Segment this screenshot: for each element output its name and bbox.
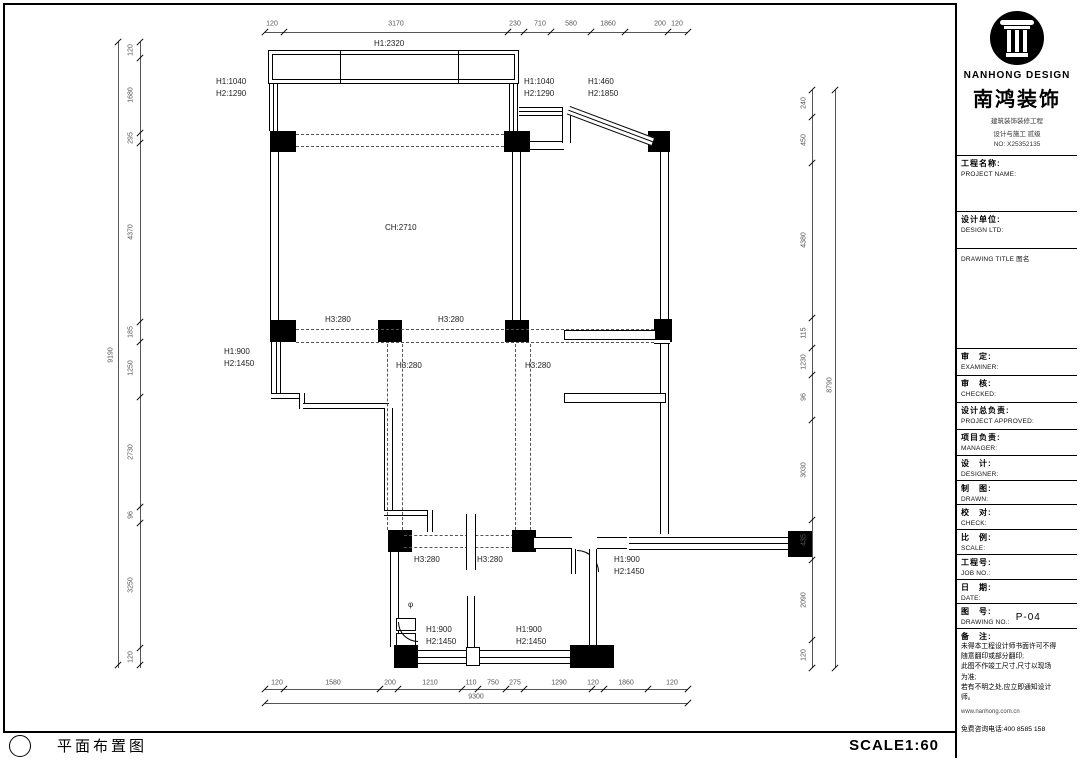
plan-annotation: H3:280 bbox=[325, 316, 351, 324]
wall bbox=[589, 549, 597, 647]
notes-label: 备 注: bbox=[961, 631, 1073, 642]
field-design-unit: 设计单位: DESIGN LTD: bbox=[957, 212, 1077, 249]
beam-dashed bbox=[404, 535, 514, 548]
note-line: 未得本工程设计师书面许可不得 bbox=[961, 642, 1073, 652]
dimension-label: 185 bbox=[128, 326, 135, 338]
dimension-label: 2730 bbox=[128, 444, 135, 460]
dimension-label: 2090 bbox=[801, 592, 808, 608]
column bbox=[570, 645, 614, 668]
field-label-en: DRAWING TITLE 图名 bbox=[961, 253, 1073, 263]
field-check: 校 对: CHECK: bbox=[957, 505, 1077, 530]
dimension-label: 580 bbox=[565, 21, 577, 28]
dimension-label: 120 bbox=[271, 680, 283, 687]
field-job-no: 工程号: JOB NO.: bbox=[957, 555, 1077, 580]
field-label-en: PROJECT NAME: bbox=[961, 171, 1073, 178]
field-label-en: CHECKED: bbox=[961, 391, 1073, 398]
field-label-cn: 工程名称: bbox=[961, 158, 1073, 169]
brand-section: NANHONG DESIGN 南鸿装饰 建筑装饰装修工程 设计与施工 贰级 NO… bbox=[957, 3, 1077, 156]
wall bbox=[427, 510, 433, 532]
field-project-name: 工程名称: PROJECT NAME: bbox=[957, 156, 1077, 212]
company-logo-icon bbox=[990, 11, 1044, 65]
brand-cert-line: 设计与施工 贰级 bbox=[961, 128, 1073, 138]
plan-annotation: H1:900 bbox=[516, 626, 542, 634]
dim-tick bbox=[684, 685, 691, 692]
column bbox=[504, 131, 530, 152]
plan-annotation: H3:280 bbox=[525, 362, 551, 370]
field-label-en: EXAMINER: bbox=[961, 364, 1073, 371]
field-label-en: PROJECT APPROVED: bbox=[961, 418, 1073, 425]
door-leaf bbox=[571, 549, 576, 574]
column bbox=[270, 320, 296, 342]
dimension-label: 450 bbox=[801, 134, 808, 146]
brand-cert-line: 建筑装饰装修工程 bbox=[961, 115, 1073, 125]
note-line: 此图不作竣工尺寸,尺寸以现场 bbox=[961, 662, 1073, 672]
field-designer: 设 计: DESIGNER: bbox=[957, 456, 1077, 481]
dimension-label: 9300 bbox=[468, 694, 484, 701]
field-label-cn: 制 图: bbox=[961, 483, 1073, 494]
beam-dashed bbox=[387, 344, 403, 530]
column bbox=[512, 530, 536, 552]
dim-tick bbox=[831, 664, 838, 671]
drawing-title: 平面布置图 bbox=[57, 735, 147, 756]
dimension-label: 240 bbox=[801, 97, 808, 109]
floor-plan: H1:2320H1:1040H2:1290H1:1040H2:1290H1:46… bbox=[0, 0, 1080, 761]
field-label-en: DATE: bbox=[961, 595, 1073, 602]
dim-tick bbox=[684, 699, 691, 706]
dimension-label: 710 bbox=[534, 21, 546, 28]
dimension-label: 120 bbox=[266, 21, 278, 28]
wall bbox=[597, 537, 627, 549]
wall-left bbox=[270, 152, 279, 320]
dimension-label: 1290 bbox=[551, 680, 567, 687]
window-left-middle bbox=[271, 342, 281, 394]
field-label-cn: 项目负责: bbox=[961, 432, 1073, 443]
wall bbox=[530, 141, 564, 150]
dimension-label: 200 bbox=[384, 680, 396, 687]
field-label-en: MANAGER: bbox=[961, 445, 1073, 452]
field-label-en: JOB NO.: bbox=[961, 570, 1073, 577]
column bbox=[394, 645, 418, 668]
wall-right-lower bbox=[660, 344, 669, 534]
field-label-cn: 设计单位: bbox=[961, 214, 1073, 225]
plan-annotation: H2:1850 bbox=[588, 90, 618, 98]
plan-annotation: H3:280 bbox=[438, 316, 464, 324]
window-bottom-a bbox=[418, 650, 466, 664]
dimension-label: 96 bbox=[128, 511, 135, 519]
dim-line-right-inner bbox=[812, 90, 813, 668]
plan-annotation: H1:1040 bbox=[216, 78, 246, 86]
dimension-label: 435 bbox=[801, 534, 808, 546]
bottom-bar: 平面布置图 SCALE1:60 bbox=[3, 731, 955, 758]
dimension-label: 110 bbox=[465, 680, 476, 687]
window-mid-upper bbox=[509, 84, 518, 131]
plan-annotation: H3:280 bbox=[396, 362, 422, 370]
plan-annotation: H3:280 bbox=[414, 556, 440, 564]
field-project-approved: 设计总负责: PROJECT APPROVED: bbox=[957, 403, 1077, 430]
drawing-sheet: H1:2320H1:1040H2:1290H1:1040H2:1290H1:46… bbox=[0, 0, 1080, 761]
brand-name-en: NANHONG DESIGN bbox=[961, 70, 1073, 81]
plan-annotation: H2:1290 bbox=[216, 90, 246, 98]
field-label-en: DESIGNER: bbox=[961, 471, 1073, 478]
plan-annotation: H1:900 bbox=[224, 348, 250, 356]
dimension-label: 120 bbox=[128, 651, 135, 663]
balcony-window-mullion bbox=[340, 50, 341, 84]
dimension-label: 275 bbox=[509, 680, 521, 687]
drawing-marker-icon bbox=[9, 735, 31, 757]
field-checked: 审 核: CHECKED: bbox=[957, 376, 1077, 403]
window-left-upper bbox=[269, 84, 278, 131]
field-label-cn: 设计总负责: bbox=[961, 405, 1073, 416]
field-label-cn: 设 计: bbox=[961, 458, 1073, 469]
field-label-en: SCALE: bbox=[961, 545, 1073, 552]
beam-dashed bbox=[296, 134, 504, 147]
plan-annotation: H2:1450 bbox=[426, 638, 456, 646]
dimension-label: 115 bbox=[801, 327, 808, 338]
dimension-label: 120 bbox=[666, 680, 678, 687]
plan-annotation: H1:900 bbox=[426, 626, 452, 634]
field-scale: 比 例: SCALE: bbox=[957, 530, 1077, 555]
field-label-cn: 比 例: bbox=[961, 532, 1073, 543]
plan-annotation: H1:2320 bbox=[374, 40, 404, 48]
plan-annotation: H2:1450 bbox=[614, 568, 644, 576]
drawing-scale: SCALE1:60 bbox=[849, 737, 939, 754]
dimension-label: 1230 bbox=[801, 354, 808, 370]
balcony-window-mullion bbox=[458, 50, 459, 84]
bay-window-horizontal bbox=[519, 107, 564, 116]
dimension-label: 750 bbox=[487, 680, 499, 687]
field-drawn: 制 图: DRAWN: bbox=[957, 481, 1077, 505]
wall-divider bbox=[512, 152, 521, 320]
field-drawing-no: 图 号: DRAWING NO.: P-04 bbox=[957, 604, 1077, 629]
window-bottom-right bbox=[629, 537, 788, 550]
dim-line-right-outer bbox=[835, 90, 836, 668]
dimension-label: 200 bbox=[654, 21, 666, 28]
field-label-cn: 日 期: bbox=[961, 582, 1073, 593]
dimension-label: 295 bbox=[128, 132, 135, 144]
dimension-label: 1580 bbox=[325, 680, 341, 687]
plan-annotation: H1:460 bbox=[588, 78, 614, 86]
dimension-label: 1680 bbox=[128, 87, 135, 103]
plan-annotation: CH:2710 bbox=[385, 224, 417, 232]
field-label-en: DESIGN LTD: bbox=[961, 227, 1073, 234]
notes-website: www.nanhong.com.cn bbox=[961, 709, 1073, 715]
dimension-label: 1860 bbox=[600, 21, 616, 28]
dimension-label: 230 bbox=[509, 21, 521, 28]
note-line: 随意翻印或部分翻印; bbox=[961, 652, 1073, 662]
dimension-label: 8790 bbox=[827, 377, 834, 393]
column bbox=[270, 131, 296, 152]
field-label-cn: 校 对: bbox=[961, 507, 1073, 518]
title-block: NANHONG DESIGN 南鸿装饰 建筑装饰装修工程 设计与施工 贰级 NO… bbox=[955, 3, 1077, 758]
field-label-cn: 工程号: bbox=[961, 557, 1073, 568]
brand-name-cn: 南鸿装饰 bbox=[961, 83, 1073, 112]
plan-annotation: H2:1290 bbox=[524, 90, 554, 98]
dim-tick bbox=[684, 28, 691, 35]
dim-line-bottom-overall bbox=[265, 703, 688, 704]
plan-annotation: φ bbox=[408, 601, 413, 609]
dimension-label: 1250 bbox=[128, 360, 135, 376]
field-label-en: DRAWN: bbox=[961, 496, 1073, 503]
dimension-label: 120 bbox=[801, 649, 808, 661]
plan-annotation: H1:900 bbox=[614, 556, 640, 564]
notes-lines: 未得本工程设计师书面许可不得随意翻印或部分翻印;此图不作竣工尺寸,尺寸以现场为准… bbox=[961, 642, 1073, 703]
beam-dashed bbox=[515, 344, 531, 530]
dimension-label: 3030 bbox=[801, 462, 808, 478]
wall bbox=[303, 403, 389, 409]
field-manager: 项目负责: MANAGER: bbox=[957, 430, 1077, 456]
dimension-label: 9190 bbox=[108, 347, 115, 363]
field-label-en: DRAWING NO.: bbox=[961, 619, 1010, 626]
field-notes: 备 注: 未得本工程设计师书面许可不得随意翻印或部分翻印;此图不作竣工尺寸,尺寸… bbox=[957, 629, 1077, 758]
wall bbox=[467, 596, 475, 648]
dimension-label: 1210 bbox=[422, 680, 438, 687]
wall-door-panel bbox=[466, 514, 476, 570]
balcony-window-inner bbox=[272, 54, 515, 80]
wall-stub bbox=[564, 393, 666, 403]
dim-line-left-inner bbox=[140, 42, 141, 668]
dimension-label: 120 bbox=[128, 44, 135, 56]
wall-right-upper bbox=[660, 152, 669, 319]
dimension-label: 120 bbox=[671, 21, 683, 28]
note-line: 若有不明之处,应立即通知设计 bbox=[961, 683, 1073, 693]
dim-line-left-outer bbox=[118, 42, 119, 668]
plan-annotation: H2:1450 bbox=[516, 638, 546, 646]
window-pier bbox=[466, 647, 480, 666]
dimension-label: 4380 bbox=[801, 232, 808, 248]
wall bbox=[534, 537, 572, 549]
dimension-label: 3250 bbox=[128, 577, 135, 593]
wall-stub bbox=[564, 330, 656, 340]
field-drawing-title: DRAWING TITLE 图名 bbox=[957, 249, 1077, 349]
notes-hotline: 免费咨询电话:400 8585 158 bbox=[961, 723, 1073, 733]
plan-annotation: H2:1450 bbox=[224, 360, 254, 368]
dimension-label: 3170 bbox=[388, 21, 404, 28]
field-label-cn: 审 核: bbox=[961, 378, 1073, 389]
dimension-label: 4370 bbox=[128, 224, 135, 240]
dim-tick bbox=[808, 664, 815, 671]
dimension-label: 1860 bbox=[618, 680, 634, 687]
field-examiner: 审 定: EXAMINER: bbox=[957, 349, 1077, 376]
dimension-label: 96 bbox=[801, 393, 808, 401]
note-line: 师。 bbox=[961, 693, 1073, 703]
plan-annotation: H3:280 bbox=[477, 556, 503, 564]
field-label-cn: 图 号: bbox=[961, 606, 1010, 617]
brand-cert-no: NO: X25352135 bbox=[961, 141, 1073, 148]
field-label-cn: 审 定: bbox=[961, 351, 1073, 362]
drawing-number-value: P-04 bbox=[1016, 612, 1041, 623]
plan-annotation: H1:1040 bbox=[524, 78, 554, 86]
field-date: 日 期: DATE: bbox=[957, 580, 1077, 604]
note-line: 为准; bbox=[961, 673, 1073, 683]
window-bottom-b bbox=[480, 650, 570, 664]
bay-window-diagonal bbox=[567, 106, 654, 146]
field-label-en: CHECK: bbox=[961, 520, 1073, 527]
